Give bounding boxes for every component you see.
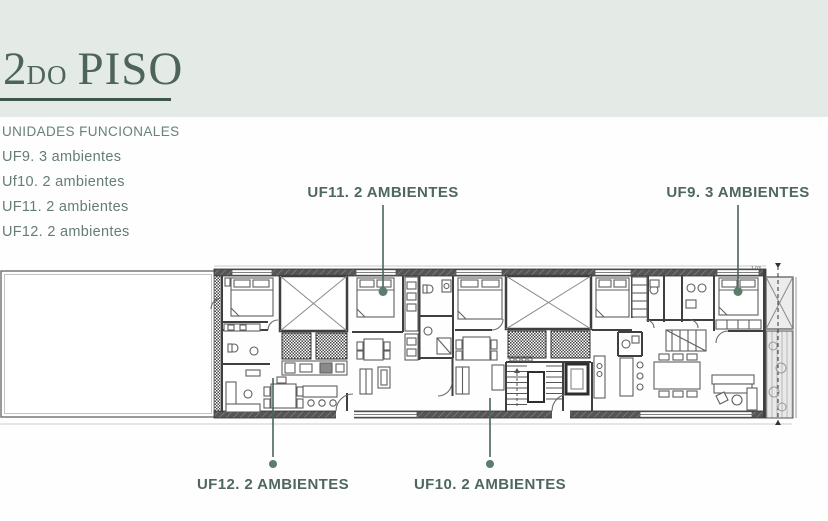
unit-marker-uf10 (486, 460, 494, 468)
bed-icon (231, 278, 273, 316)
unit-marker-uf12 (269, 460, 277, 468)
unit-marker-uf9 (734, 287, 743, 296)
sofa-icon (360, 367, 390, 394)
nightstand-icon (225, 278, 230, 286)
bed-icon (596, 278, 629, 317)
terrace-area (1, 271, 215, 417)
light-well-2 (506, 276, 591, 329)
light-well-1 (280, 276, 347, 331)
bed-icon (357, 278, 394, 317)
unit-marker-uf11 (379, 287, 388, 296)
masonry-blocks (282, 331, 590, 359)
kitchenette-strip-icon (405, 277, 418, 360)
bathroom-fixtures-icon (224, 324, 260, 355)
left-party-wall (214, 276, 222, 411)
sofa-icon (712, 375, 757, 410)
kitchen-counter-icon (282, 361, 347, 375)
bathroom-fixtures-icon (622, 336, 639, 348)
closet-icon (632, 277, 647, 317)
plan-annotation: 1.03 (751, 266, 761, 272)
kitchen-island-icon (303, 386, 337, 406)
dining-table-icon (456, 337, 497, 360)
dining-table-icon (357, 339, 390, 360)
bathroom-fixtures-icon (650, 280, 706, 308)
stairs-icon (507, 357, 562, 406)
sofa-icon (456, 365, 504, 394)
elevator-icon (566, 364, 588, 394)
bed-icon (458, 278, 502, 319)
floor-plan-drawing: 1.03 (0, 0, 828, 521)
kitchen-counter-icon (594, 356, 643, 398)
dining-table-icon (264, 377, 303, 408)
right-shaft (766, 277, 793, 329)
dining-table-icon (654, 354, 700, 397)
sofa-icon (226, 370, 260, 412)
